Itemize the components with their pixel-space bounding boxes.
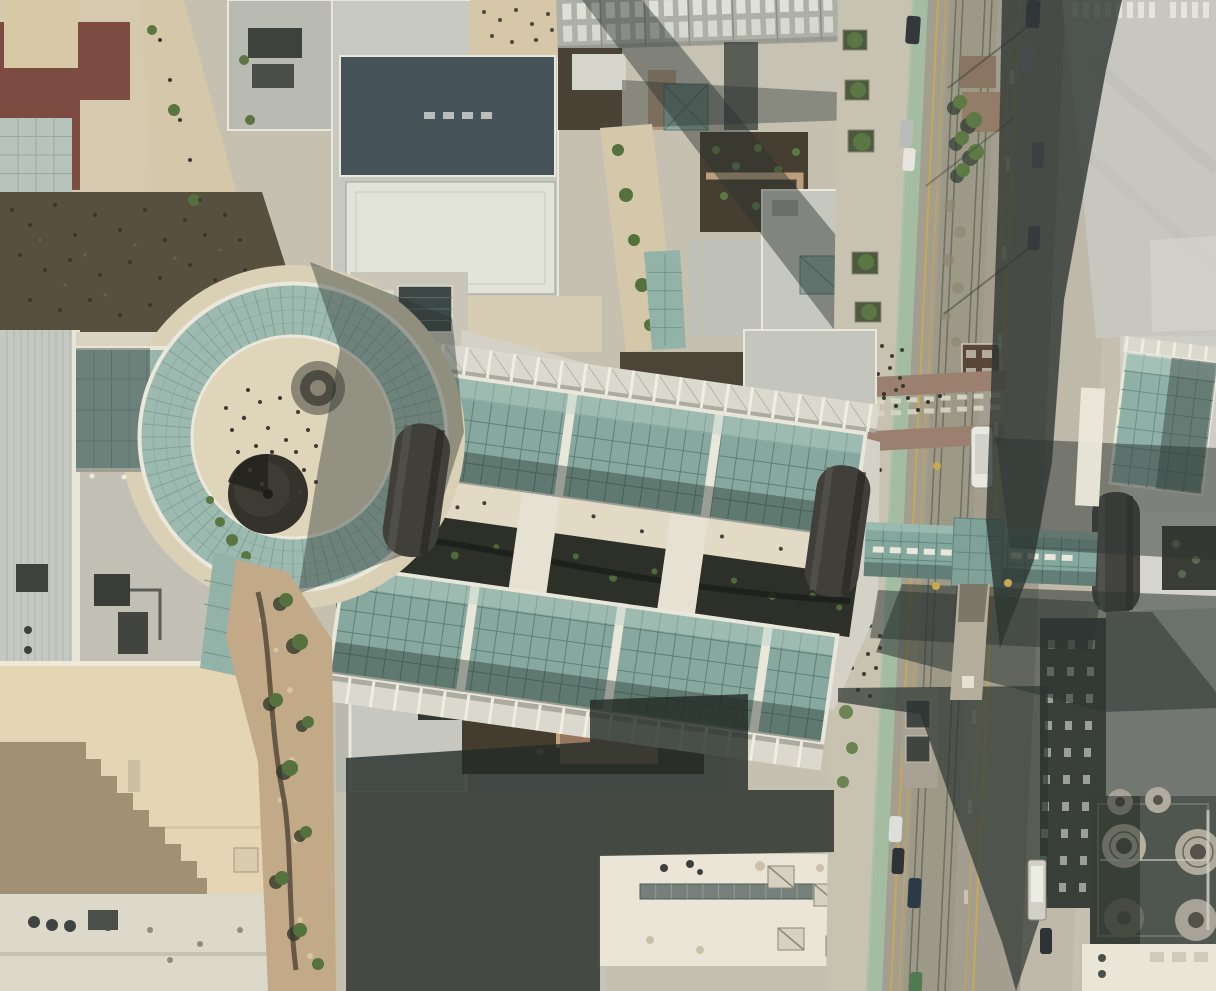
station-shelter-b	[906, 736, 930, 762]
gray-building-rooftop-unit-b	[252, 64, 294, 88]
gray-building-rooftop-unit-a	[248, 28, 302, 58]
white-roof-se-boxes	[1150, 952, 1208, 962]
white-roof-sw-seam	[0, 952, 278, 956]
taxi-dot-2	[1004, 579, 1012, 587]
aerial-imagery-viewport	[0, 0, 1216, 991]
flat-roof-hvac-a	[94, 574, 130, 606]
flat-roof-hvac-b	[118, 612, 148, 654]
van-south	[888, 816, 902, 843]
roof-c	[690, 240, 764, 336]
car-west-1	[905, 16, 921, 45]
median-platform-a	[960, 56, 996, 88]
white-roof-southwest	[0, 894, 278, 991]
station-platform-marker	[962, 676, 974, 688]
white-roof-sw-box	[88, 910, 118, 930]
car-east-south	[1040, 928, 1052, 954]
car-south-2	[907, 878, 922, 909]
taxi-dot-1	[932, 582, 940, 590]
top-center-white-roof	[572, 54, 626, 90]
seam-roof-left	[0, 330, 76, 668]
aerial-photo	[0, 0, 1216, 991]
hvac-roof-shadow	[1090, 796, 1140, 944]
car-east-4	[1027, 226, 1040, 251]
beige-roof-unit-b	[128, 760, 140, 792]
car-west-2	[899, 120, 914, 148]
fountain-lower-core	[263, 489, 273, 499]
east-roof-light-section	[1150, 236, 1216, 332]
beige-roof-unit-white	[234, 848, 258, 872]
car-south-1	[891, 848, 904, 875]
transit-bus-roof	[975, 434, 989, 474]
car-east-2	[1019, 46, 1033, 73]
car-green-south	[909, 972, 922, 991]
car-west-3	[902, 148, 916, 172]
shadow-above-bridge	[996, 438, 1216, 560]
white-roof-southeast	[1082, 944, 1216, 991]
fountain-upper-core	[310, 380, 326, 396]
seam-roof-hvac	[16, 564, 48, 592]
station-platform-ramp	[958, 584, 988, 622]
maroon-building-upper-roof	[4, 0, 78, 68]
truck-south-top	[1031, 866, 1043, 902]
taxi-dot-3	[933, 462, 941, 470]
car-east-3	[1031, 142, 1044, 169]
car-east-1	[1025, 0, 1040, 28]
